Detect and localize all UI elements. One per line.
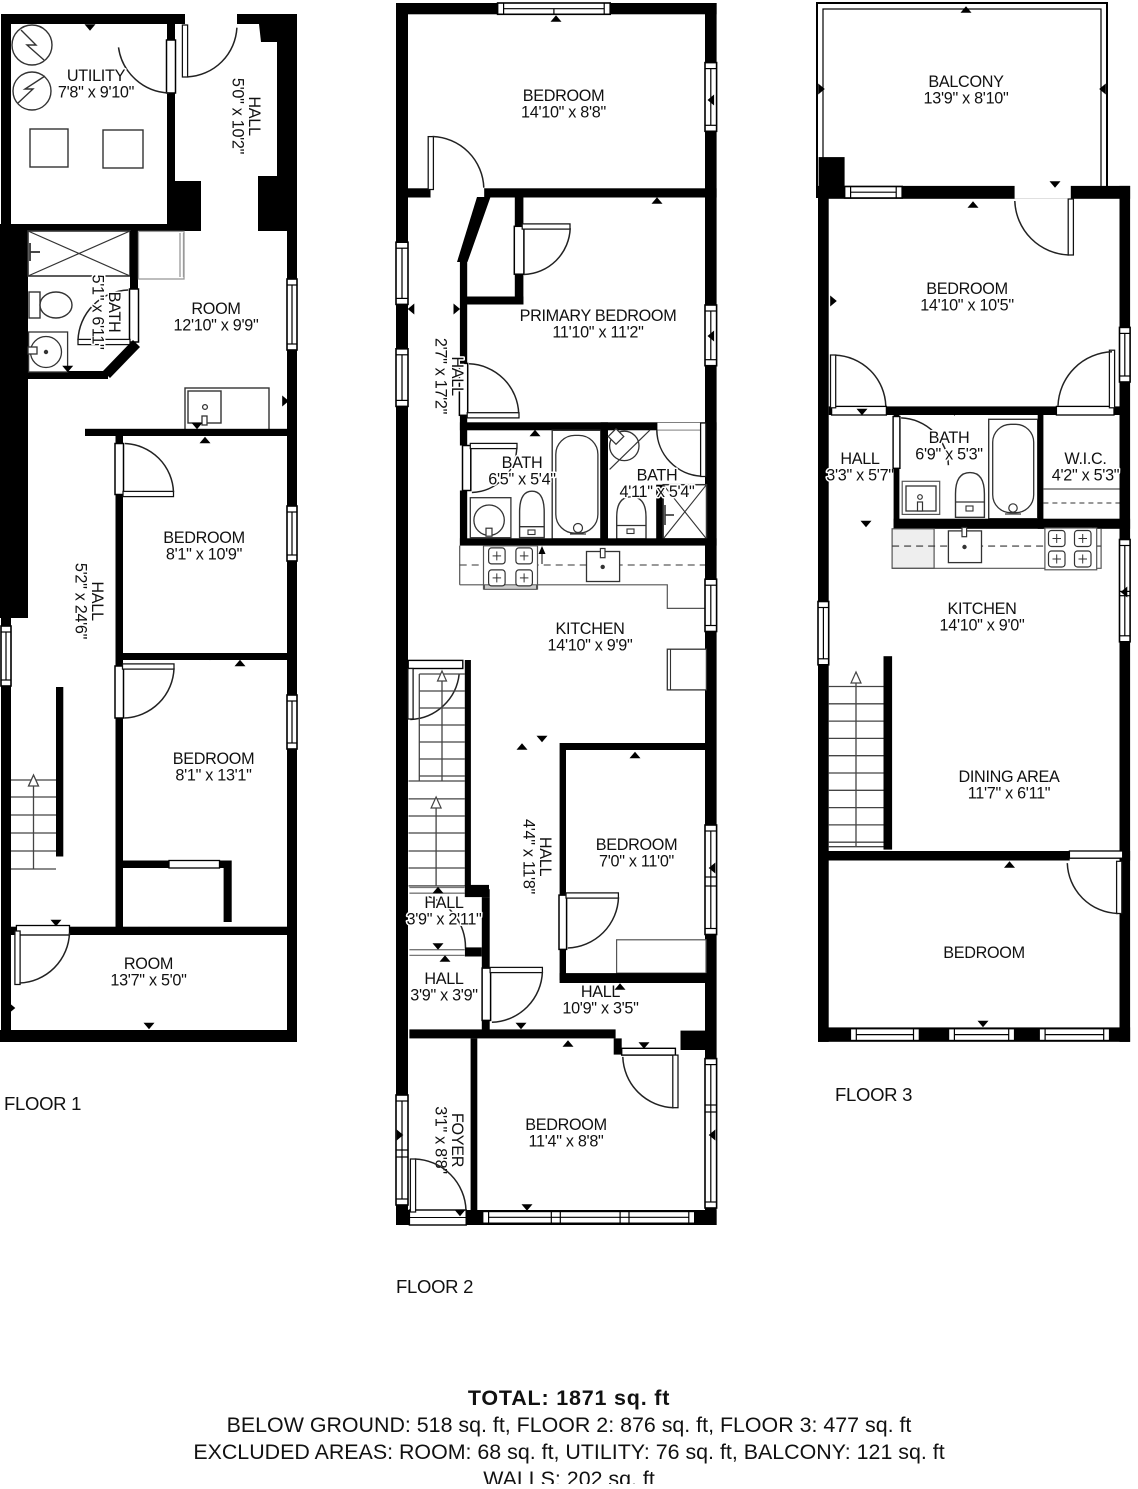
svg-text:HALL: HALL: [536, 837, 554, 877]
svg-text:EXCLUDED AREAS: ROOM: 68 sq. f: EXCLUDED AREAS: ROOM: 68 sq. ft, UTILITY…: [193, 1440, 944, 1464]
svg-text:ROOM: ROOM: [191, 300, 240, 318]
svg-text:8'1" x 10'9": 8'1" x 10'9": [166, 546, 243, 564]
svg-text:FLOOR 1: FLOOR 1: [4, 1093, 81, 1114]
svg-text:FOYER: FOYER: [448, 1113, 466, 1167]
svg-text:BEDROOM: BEDROOM: [525, 1116, 607, 1134]
svg-text:4'2" x 5'3": 4'2" x 5'3": [1052, 467, 1120, 485]
svg-text:3'1" x 8'8": 3'1" x 8'8": [432, 1106, 450, 1174]
svg-text:6'5" x 5'4": 6'5" x 5'4": [488, 471, 556, 489]
svg-text:WALLS: 202 sq. ft: WALLS: 202 sq. ft: [483, 1467, 655, 1484]
svg-text:13'9" x 8'10": 13'9" x 8'10": [924, 90, 1009, 108]
svg-text:14'10" x 9'0": 14'10" x 9'0": [940, 617, 1025, 635]
svg-text:FLOOR 2: FLOOR 2: [396, 1276, 473, 1297]
svg-text:TOTAL: 1871 sq. ft: TOTAL: 1871 sq. ft: [468, 1386, 670, 1410]
svg-text:BALCONY: BALCONY: [928, 73, 1004, 91]
svg-text:4'11" x 5'4": 4'11" x 5'4": [620, 483, 696, 501]
svg-text:11'7" x 6'11": 11'7" x 6'11": [968, 785, 1051, 803]
svg-text:HALL: HALL: [581, 983, 621, 1001]
svg-text:BATH: BATH: [637, 467, 678, 485]
svg-text:BEDROOM: BEDROOM: [173, 750, 255, 768]
svg-text:HALL: HALL: [424, 970, 464, 988]
svg-text:BEDROOM: BEDROOM: [163, 529, 245, 547]
svg-text:14'10" x 10'5": 14'10" x 10'5": [920, 297, 1014, 315]
svg-text:11'10" x 11'2": 11'10" x 11'2": [552, 324, 644, 342]
svg-text:3'3" x 5'7": 3'3" x 5'7": [826, 467, 894, 485]
svg-text:ROOM: ROOM: [124, 955, 173, 973]
svg-text:PRIMARY BEDROOM: PRIMARY BEDROOM: [520, 307, 677, 325]
svg-text:W.I.C.: W.I.C.: [1064, 450, 1106, 468]
svg-text:12'10" x 9'9": 12'10" x 9'9": [174, 317, 259, 335]
svg-text:HALL: HALL: [448, 356, 466, 396]
svg-text:BELOW GROUND: 518 sq. ft, FLOO: BELOW GROUND: 518 sq. ft, FLOOR 2: 876 s…: [227, 1413, 912, 1437]
svg-text:7'8" x 9'10": 7'8" x 9'10": [58, 84, 135, 102]
svg-text:BEDROOM: BEDROOM: [926, 280, 1008, 298]
svg-text:5'1" x 6'11": 5'1" x 6'11": [89, 275, 107, 351]
svg-text:FLOOR 3: FLOOR 3: [835, 1084, 912, 1105]
svg-text:BATH: BATH: [105, 292, 123, 333]
svg-text:KITCHEN: KITCHEN: [556, 620, 625, 638]
svg-text:HALL: HALL: [424, 894, 464, 912]
svg-text:7'0" x 11'0": 7'0" x 11'0": [599, 853, 675, 871]
svg-text:14'10" x 8'8": 14'10" x 8'8": [521, 104, 606, 122]
svg-text:BATH: BATH: [929, 429, 970, 447]
svg-text:14'10" x 9'9": 14'10" x 9'9": [548, 637, 633, 655]
svg-text:4'4" x 11'8": 4'4" x 11'8": [520, 819, 538, 895]
svg-text:2'7" x 17'2": 2'7" x 17'2": [432, 338, 450, 415]
svg-text:UTILITY: UTILITY: [67, 67, 126, 85]
svg-text:13'7" x 5'0": 13'7" x 5'0": [110, 972, 187, 990]
svg-text:5'0" x 10'2": 5'0" x 10'2": [229, 78, 247, 155]
svg-text:10'9" x 3'5": 10'9" x 3'5": [562, 1000, 639, 1018]
svg-text:3'9" x 3'9": 3'9" x 3'9": [410, 987, 478, 1005]
svg-text:BEDROOM: BEDROOM: [523, 87, 605, 105]
svg-text:HALL: HALL: [840, 450, 880, 468]
svg-text:HALL: HALL: [245, 96, 263, 136]
svg-text:BEDROOM: BEDROOM: [943, 944, 1025, 962]
svg-text:BATH: BATH: [502, 454, 543, 472]
svg-text:KITCHEN: KITCHEN: [948, 600, 1017, 618]
svg-text:8'1" x 13'1": 8'1" x 13'1": [175, 767, 252, 785]
svg-text:DINING AREA: DINING AREA: [958, 768, 1060, 786]
svg-text:HALL: HALL: [88, 581, 106, 621]
svg-text:6'9" x 5'3": 6'9" x 5'3": [915, 446, 983, 464]
svg-text:BEDROOM: BEDROOM: [596, 836, 678, 854]
svg-text:11'4" x 8'8": 11'4" x 8'8": [529, 1133, 605, 1151]
svg-text:5'2" x 24'6": 5'2" x 24'6": [72, 563, 90, 640]
svg-text:3'9" x 2'11": 3'9" x 2'11": [407, 911, 483, 929]
